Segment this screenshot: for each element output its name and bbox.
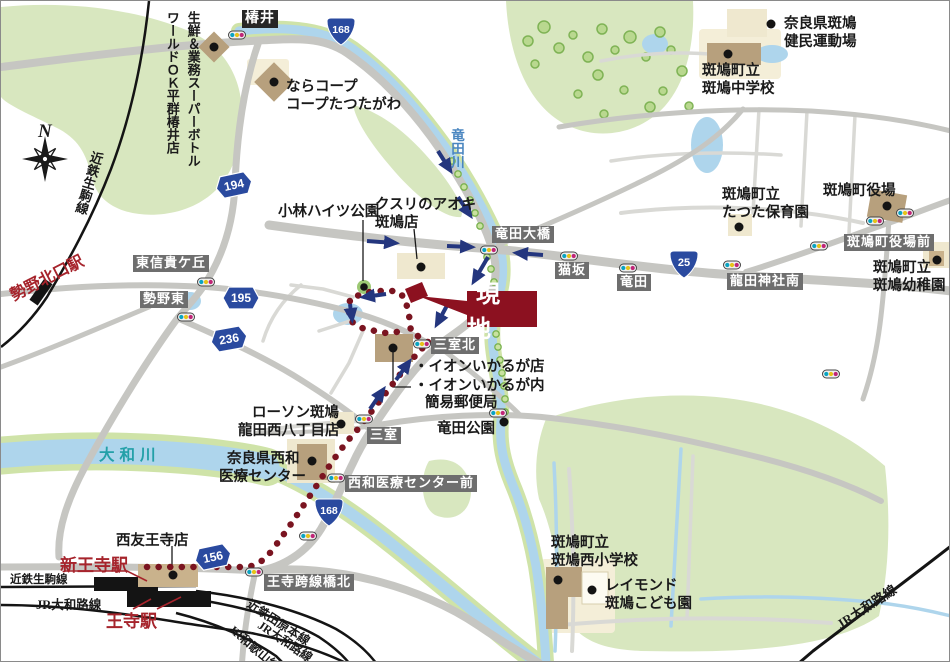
road-p156: [1, 567, 259, 571]
route-map: 168 168 25 194 195 236 156: [0, 0, 950, 662]
svg-text:168: 168: [332, 24, 350, 36]
poi-lawson-line1: ローソン斑鳩: [252, 404, 339, 422]
rail-label-kintetsu-ikoma-sw: 近鉄生駒線: [10, 573, 68, 587]
poi-lawson-line2: 龍田西八丁目店: [238, 422, 340, 440]
intersection-seya-higashi: 勢野東: [140, 291, 188, 308]
svg-text:25: 25: [678, 257, 690, 269]
svg-text:195: 195: [231, 291, 251, 305]
poi-raymond-label: レイモンド 斑鳩こども園: [605, 577, 692, 614]
river-tatsutagawa-label: 竜田川: [448, 128, 465, 169]
poi-yochien-label: 斑鳩町立 斑鳩幼稚園: [873, 259, 946, 296]
intersection-oji-kosenkyo-kita: 王寺跨線橋北: [264, 574, 354, 591]
intersection-higashi-shigigaoka: 東信貴ケ丘: [133, 255, 209, 272]
poi-chugakko-label: 斑鳩町立 斑鳩中学校: [702, 62, 775, 99]
site-label: 現地: [467, 291, 537, 327]
compass-north-label: N: [38, 120, 52, 144]
site-flag-icon: [405, 282, 428, 303]
poi-kusuri-aoki-label: クスリのアオキ 斑鳩店: [375, 196, 476, 233]
poi-seisen-super-line2: ワールドＯＫ平群椿井店: [165, 11, 180, 154]
shield-195: 195: [223, 287, 259, 309]
poi-aeon-line3: 簡易郵便局: [425, 394, 498, 412]
intersection-seiwa-iryo-center-mae: 西和医療センター前: [345, 475, 477, 492]
intersection-yakuba-mae: 斑鳩町役場前: [844, 234, 934, 251]
poi-seiwa-line1: 奈良県西和: [227, 450, 300, 468]
intersection-tatsuta-jinja-minami: 龍田神社南: [727, 273, 803, 290]
station-shin-oji: 新王寺駅: [60, 551, 128, 576]
poi-seisen-super-line1: 生鮮＆業務スーパーボトル: [186, 11, 201, 167]
poi-kobayashi-park-label: 小林ハイツ公園: [278, 203, 379, 221]
poi-aeon-line2: ・イオンいかるが内: [414, 377, 545, 395]
intersection-tatsuta: 竜田: [617, 274, 651, 291]
poi-aeon-line1: ・イオンいかるが店: [414, 358, 545, 376]
poi-kenmin-undojo-label: 奈良県斑鳩 健民運動場: [784, 15, 857, 52]
poi-nishi-shogakko-label: 斑鳩町立 斑鳩西小学校: [551, 534, 638, 571]
station-oji: 王寺駅: [106, 607, 157, 632]
site-marker: [405, 282, 467, 315]
poi-tatsuta-koen-label: 竜田公園: [437, 420, 495, 438]
svg-text:168: 168: [320, 505, 338, 517]
rail-label-jr-yamatoji-sw: JR大和路線: [36, 598, 101, 614]
poi-hoikuen-label: 斑鳩町立 たつた保育園: [722, 186, 809, 223]
intersection-tatsuta-ohashi: 竜田大橋: [492, 226, 554, 243]
poi-seisen-super-label: 生鮮＆業務スーパーボトル ワールドＯＫ平群椿井店: [161, 11, 203, 189]
intersection-tsubai: 椿井: [242, 10, 278, 28]
intersection-mimuro: 三室: [367, 427, 401, 444]
kenmin-undojo-building: [727, 9, 767, 37]
road-seya: [1, 307, 149, 367]
intersection-nekosaka: 猫坂: [555, 262, 589, 279]
poi-seiyu-label: 西友王寺店: [116, 532, 189, 550]
green-areas: [1, 1, 888, 651]
intersection-mimuro-kita: 三室北: [431, 337, 479, 354]
shield-168-south: 168: [315, 499, 343, 526]
poi-yakuba-label: 斑鳩町役場: [823, 182, 896, 200]
poi-seiwa-line2: 医療センター: [219, 468, 306, 486]
poi-nara-coop-label: ならコープ コープたつたがわ: [286, 78, 401, 115]
river-yamatogawa-label: 大和川: [99, 446, 161, 466]
